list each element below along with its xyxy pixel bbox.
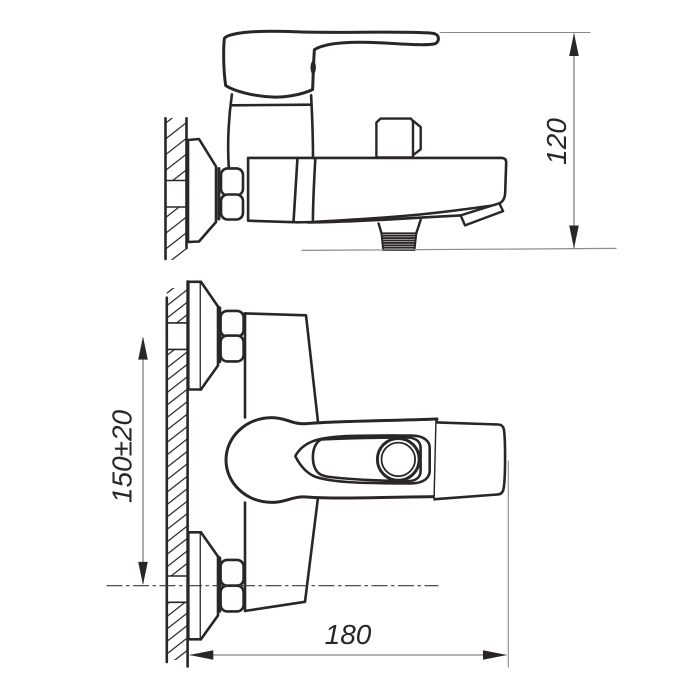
svg-text:120: 120 <box>541 118 572 165</box>
svg-text:180: 180 <box>325 619 372 650</box>
svg-text:150±20: 150±20 <box>107 409 138 503</box>
